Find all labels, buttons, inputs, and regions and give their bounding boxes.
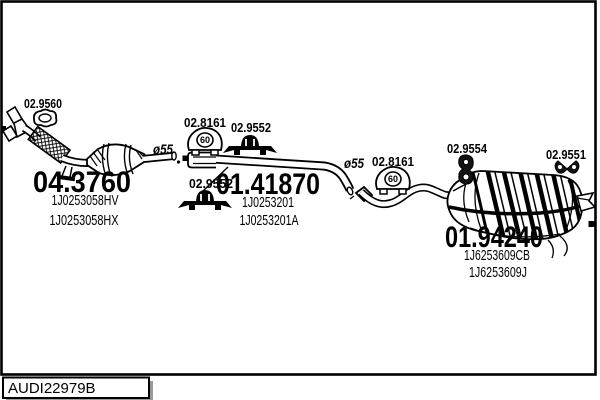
rear-hanger-ref-label: 02.9554 — [447, 141, 488, 156]
exhaust-system-diagram: 02.9560 ø55 02.8161 60 02.9552 02.9552 ø… — [0, 0, 600, 400]
centre-pipe-diameter-label: ø55 — [344, 156, 364, 171]
tailpipe-tip-icon — [577, 193, 595, 211]
gasket-ref-label: 02.9560 — [24, 96, 62, 111]
rear-mount-ref-label: 02.8161 — [372, 154, 414, 169]
front-pipe-oem-2: 1J0253058HX — [50, 213, 119, 229]
butterfly-hanger-icon — [555, 161, 579, 173]
centre-mount-size-label: 60 — [200, 135, 210, 145]
frame-tick-right — [589, 221, 595, 227]
front-pipe-oem-1: 1J0253058HV — [52, 193, 119, 209]
footer-drawing-code: AUDI22979B — [8, 380, 96, 397]
joint-dot — [177, 160, 180, 163]
centre-pipe-oem-1: 1J0253201 — [242, 195, 294, 211]
centre-pipe-oem-2: 1J0253201A — [240, 213, 299, 229]
centre-bracket-upper-ref-label: 02.9552 — [231, 120, 271, 135]
rear-muffler-oem-2: 1J6253609J — [469, 265, 527, 281]
gasket-icon — [34, 110, 57, 127]
saddle-bracket-icon — [223, 135, 277, 155]
footer: AUDI22979B — [3, 378, 153, 400]
rear-mount-size-label: 60 — [388, 174, 398, 184]
rubber-hanger-icon — [459, 155, 473, 184]
rear-hanger-rear-ref-label: 02.9551 — [546, 147, 586, 162]
front-pipe-diameter-label: ø55 — [153, 142, 173, 157]
centre-mount-ref-label: 02.8161 — [184, 115, 226, 130]
rear-muffler-oem-1: 1J6253609CB — [464, 248, 530, 264]
flange-fork-icon — [3, 107, 30, 141]
